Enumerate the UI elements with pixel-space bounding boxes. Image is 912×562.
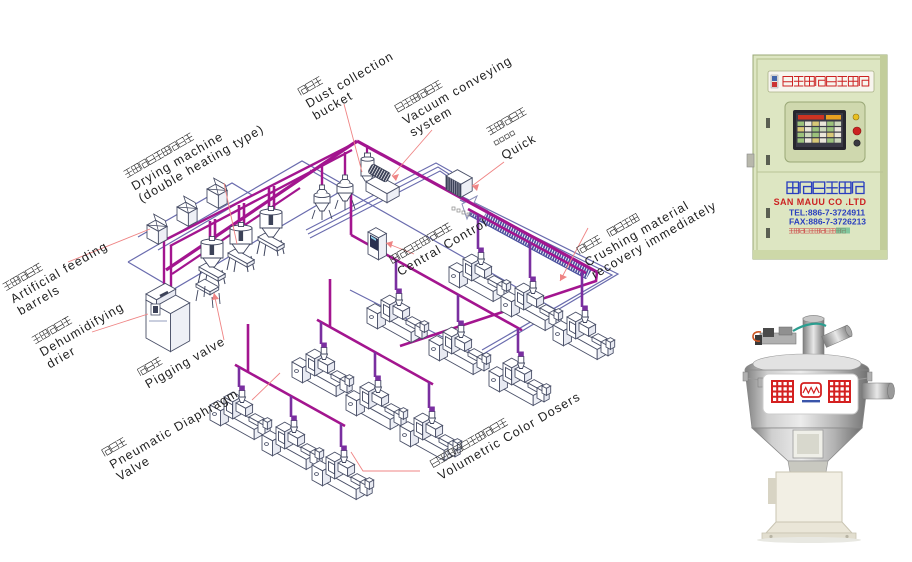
svg-text:Vacuum conveying: Vacuum conveying [400,53,514,127]
svg-text:FAX:886-7-3726213: FAX:886-7-3726213 [789,217,866,227]
svg-text:Pneumatic Diaphragm: Pneumatic Diaphragm [107,386,241,471]
svg-text:SAN MAUU CO .LTD: SAN MAUU CO .LTD [774,197,867,207]
svg-text:recovery immediately: recovery immediately [589,198,719,281]
svg-text:Volumetric Color Dosers: Volumetric Color Dosers [435,389,583,482]
svg-text:Dehumidifying: Dehumidifying [37,300,126,360]
